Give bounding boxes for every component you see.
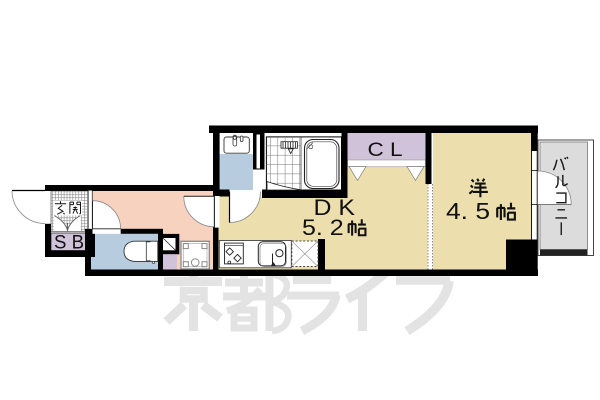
svg-text:5. 2: 5. 2 [302, 215, 344, 240]
svg-text:4. 5: 4. 5 [446, 198, 490, 224]
svg-text:S B: S B [54, 232, 84, 254]
svg-text:C L: C L [368, 140, 403, 161]
